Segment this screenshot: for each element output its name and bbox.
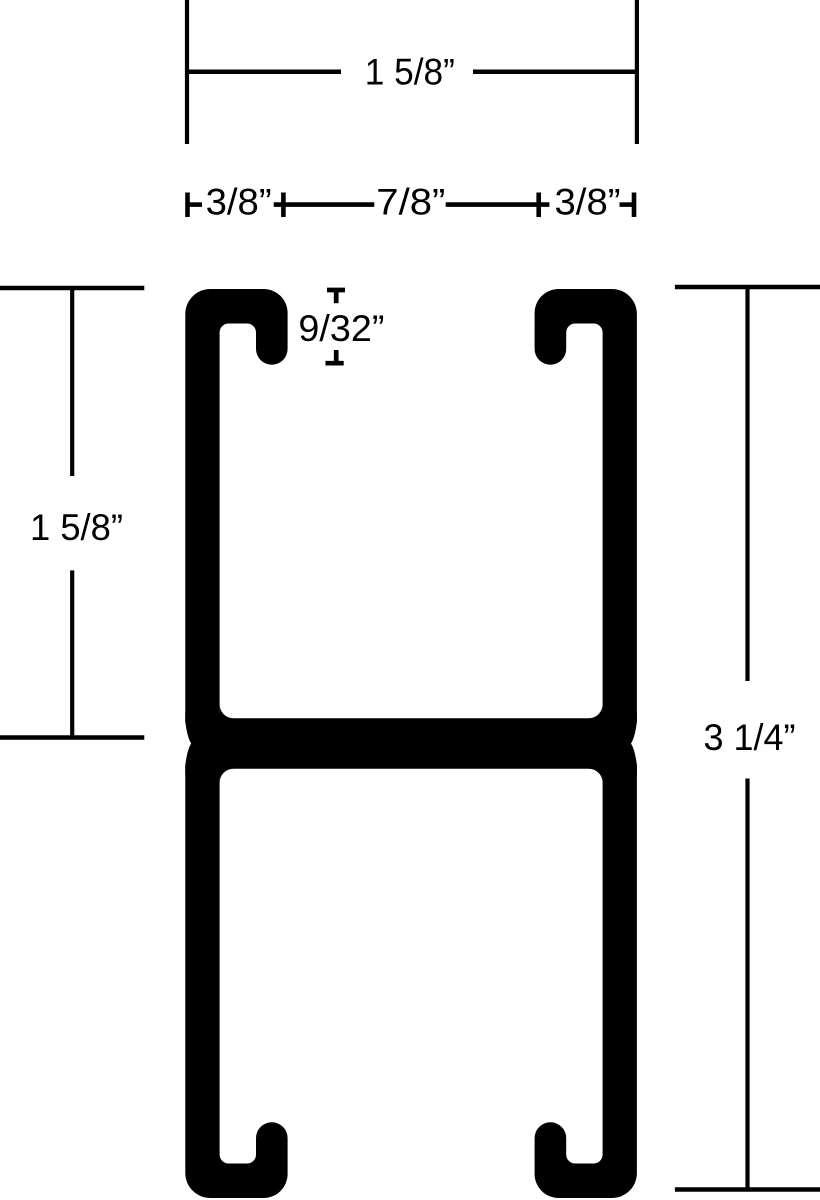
- svg-text:1 5/8”: 1 5/8”: [30, 506, 123, 548]
- svg-text:7/8”: 7/8”: [376, 181, 445, 223]
- svg-text:1 5/8”: 1 5/8”: [365, 51, 455, 93]
- svg-text:3/8”: 3/8”: [555, 181, 621, 223]
- svg-text:3 1/4”: 3 1/4”: [704, 716, 796, 758]
- svg-text:3/8”: 3/8”: [206, 181, 272, 223]
- svg-text:9/32”: 9/32”: [298, 307, 384, 349]
